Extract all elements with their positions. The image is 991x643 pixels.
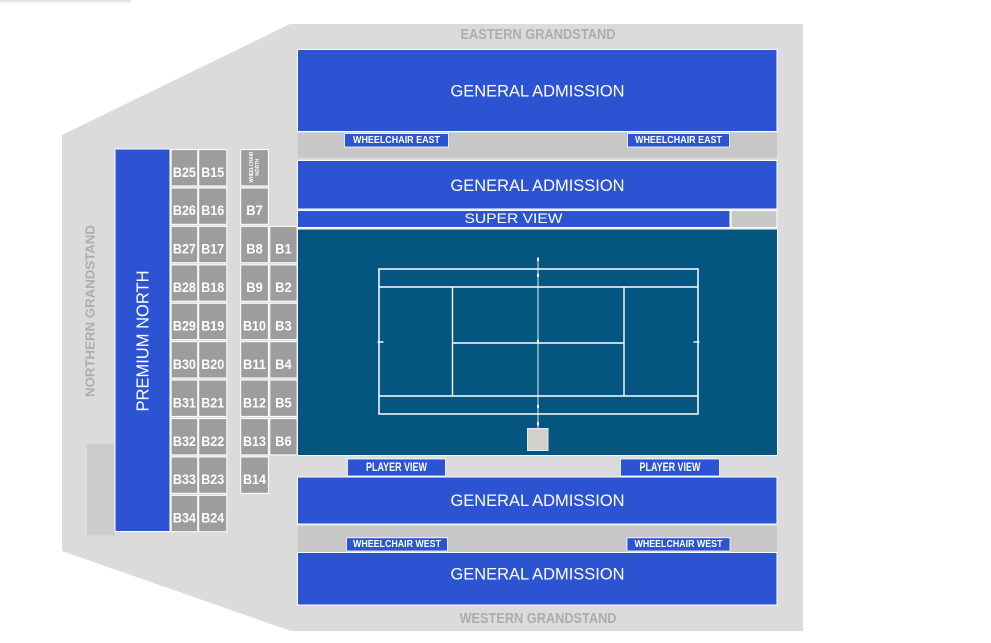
svg-text:B13: B13	[243, 433, 266, 449]
svg-text:EASTERN GRANDSTAND: EASTERN GRANDSTAND	[461, 27, 616, 43]
svg-text:B19: B19	[201, 318, 224, 334]
svg-text:B20: B20	[201, 356, 224, 372]
svg-text:B28: B28	[173, 279, 196, 295]
svg-text:B2: B2	[275, 279, 292, 295]
svg-text:B18: B18	[201, 279, 224, 295]
svg-text:B17: B17	[201, 241, 224, 257]
svg-text:NORTHERN GRANDSTAND: NORTHERN GRANDSTAND	[83, 225, 98, 397]
svg-text:B15: B15	[201, 164, 224, 180]
svg-text:B3: B3	[275, 318, 292, 334]
svg-text:WHEELCHAIR EAST: WHEELCHAIR EAST	[635, 135, 722, 146]
svg-text:B4: B4	[275, 356, 292, 372]
svg-text:B9: B9	[246, 279, 263, 295]
svg-text:B7: B7	[246, 202, 263, 218]
svg-text:B30: B30	[173, 356, 196, 372]
svg-text:PREMIUM NORTH: PREMIUM NORTH	[133, 271, 153, 412]
svg-text:B22: B22	[201, 433, 224, 449]
svg-text:GENERAL ADMISSION: GENERAL ADMISSION	[451, 565, 625, 584]
svg-text:SUPER VIEW: SUPER VIEW	[465, 210, 564, 226]
svg-text:B29: B29	[173, 318, 196, 334]
svg-text:B16: B16	[201, 202, 224, 218]
svg-text:WESTERN GRANDSTAND: WESTERN GRANDSTAND	[460, 611, 617, 627]
svg-text:B23: B23	[201, 471, 224, 487]
svg-text:B11: B11	[243, 356, 266, 372]
svg-text:B34: B34	[173, 510, 196, 526]
svg-text:B12: B12	[243, 394, 266, 410]
svg-text:B5: B5	[275, 394, 292, 410]
svg-text:GENERAL ADMISSION: GENERAL ADMISSION	[451, 82, 625, 101]
svg-text:B27: B27	[173, 241, 196, 257]
svg-text:B21: B21	[201, 394, 224, 410]
svg-text:B6: B6	[275, 433, 292, 449]
svg-text:B25: B25	[173, 164, 196, 180]
svg-text:GENERAL ADMISSION: GENERAL ADMISSION	[451, 176, 625, 195]
svg-text:PLAYER VIEW: PLAYER VIEW	[640, 462, 701, 474]
svg-text:B1: B1	[275, 241, 292, 257]
svg-text:B8: B8	[246, 241, 263, 257]
svg-text:WHEELCHAIR EAST: WHEELCHAIR EAST	[353, 135, 440, 146]
svg-text:B24: B24	[201, 510, 224, 526]
svg-text:WHEELCHAIR WEST: WHEELCHAIR WEST	[353, 539, 441, 550]
svg-text:B26: B26	[173, 202, 196, 218]
svg-text:B14: B14	[243, 471, 266, 487]
svg-text:GENERAL ADMISSION: GENERAL ADMISSION	[451, 491, 625, 510]
svg-text:B31: B31	[173, 394, 196, 410]
svg-text:WHEELCHAIR WEST: WHEELCHAIR WEST	[635, 539, 723, 550]
svg-text:NORTH: NORTH	[255, 159, 261, 176]
svg-text:PLAYER VIEW: PLAYER VIEW	[366, 462, 427, 474]
svg-text:B33: B33	[173, 471, 196, 487]
svg-text:B10: B10	[243, 318, 266, 334]
svg-text:B32: B32	[173, 433, 196, 449]
